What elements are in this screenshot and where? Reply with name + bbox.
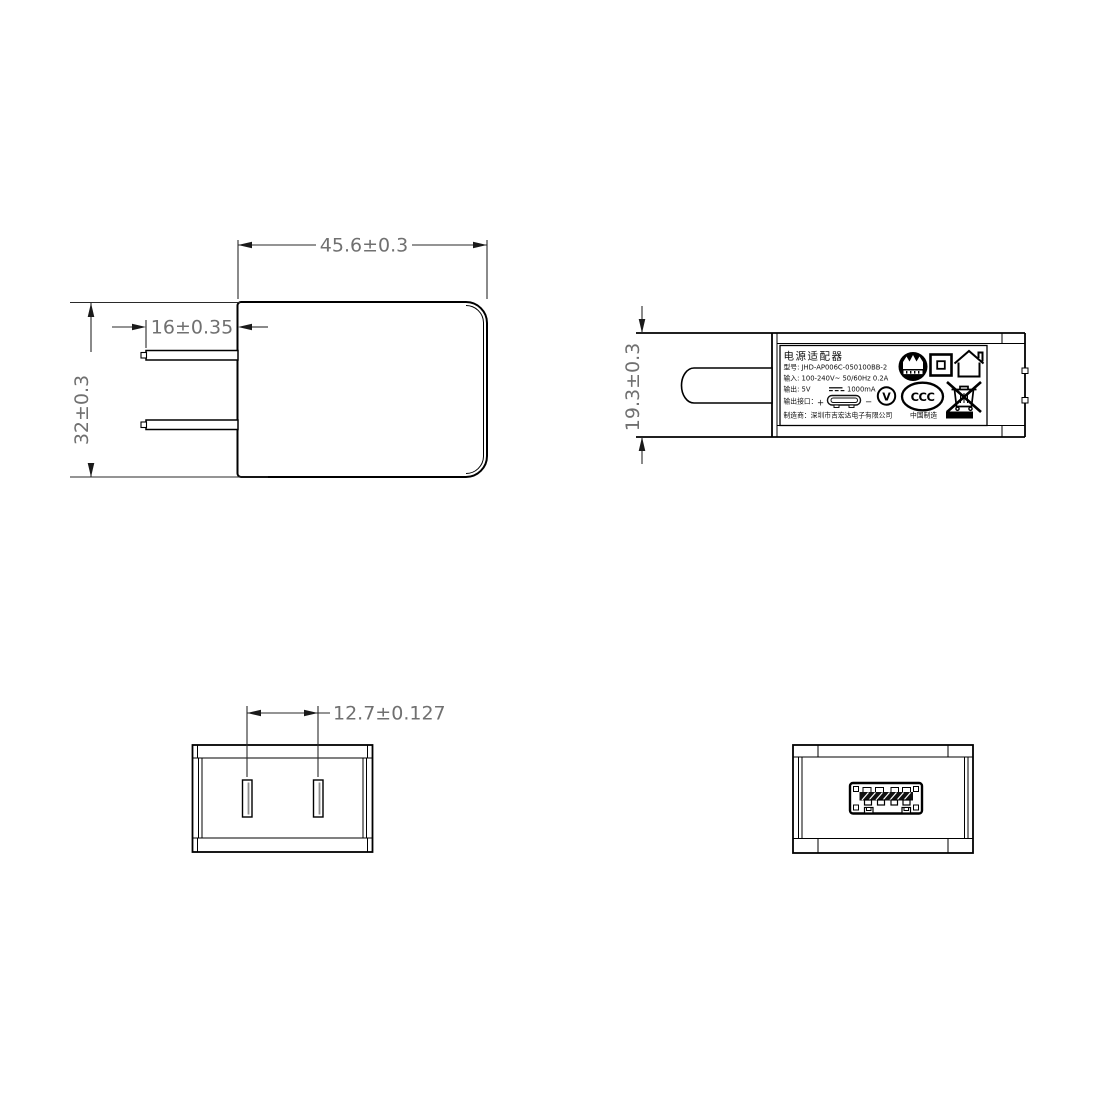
ccc-letters: CCC	[911, 390, 935, 404]
prong-slot	[314, 780, 324, 817]
side-view: 19.3±0.3 电源适配器 型号: JHD-AP006C-050100BB-2…	[622, 306, 1028, 464]
mains-prong-side	[682, 368, 773, 403]
label-model: 型号: JHD-AP006C-050100BB-2	[784, 363, 888, 372]
label-input: 输入: 100-240V~ 50/60Hz 0.2A	[784, 374, 889, 383]
label-manufacturer: 制造商：深圳市吉宏达电子有限公司	[784, 411, 893, 420]
adapter-drawing-svg: 45.6±0.3 32±0.3 16±0.35	[0, 0, 1100, 1100]
label-made-in: 中国制造	[910, 411, 937, 420]
adapter-body-front	[238, 302, 488, 477]
label-output-suffix: 1000mA	[847, 386, 876, 394]
port-edge-tab	[1022, 398, 1028, 404]
dim-side-height-text: 19.3±0.3	[622, 343, 644, 431]
dim-front-width: 45.6±0.3	[238, 235, 487, 300]
label-output-prefix: 输出: 5V	[784, 385, 811, 394]
label-plus: +	[817, 399, 824, 409]
label-title: 电源适配器	[784, 350, 844, 363]
port-edge-tab	[1022, 368, 1028, 374]
label-minus: −	[865, 398, 872, 408]
usb-port-icon	[850, 783, 922, 814]
technical-drawing-page: 45.6±0.3 32±0.3 16±0.35	[0, 0, 1100, 1100]
bottom-view: 12.7±0.127	[193, 703, 446, 853]
dim-pin-spacing-text: 12.7±0.127	[333, 703, 446, 725]
dim-prong-length-text: 16±0.35	[151, 317, 233, 339]
adapter-label: 电源适配器 型号: JHD-AP006C-050100BB-2 输入: 100-…	[780, 346, 987, 426]
efficiency-v-letter: V	[882, 391, 891, 404]
prong-slot	[243, 780, 253, 817]
front-view: 45.6±0.3 32±0.3 16±0.35	[70, 235, 487, 478]
output-end-view	[793, 745, 973, 853]
label-port-prefix: 输出接口：	[784, 397, 818, 406]
dim-front-width-text: 45.6±0.3	[320, 235, 408, 257]
cert-mark-icon	[899, 352, 928, 381]
dim-prong-length: 16±0.35	[112, 317, 268, 349]
label-black-bar	[946, 412, 973, 419]
dim-side-height: 19.3±0.3	[622, 306, 645, 464]
mains-prongs-front	[141, 351, 238, 430]
body-inner-edge	[466, 306, 484, 474]
dim-front-height-text: 32±0.3	[71, 375, 93, 445]
